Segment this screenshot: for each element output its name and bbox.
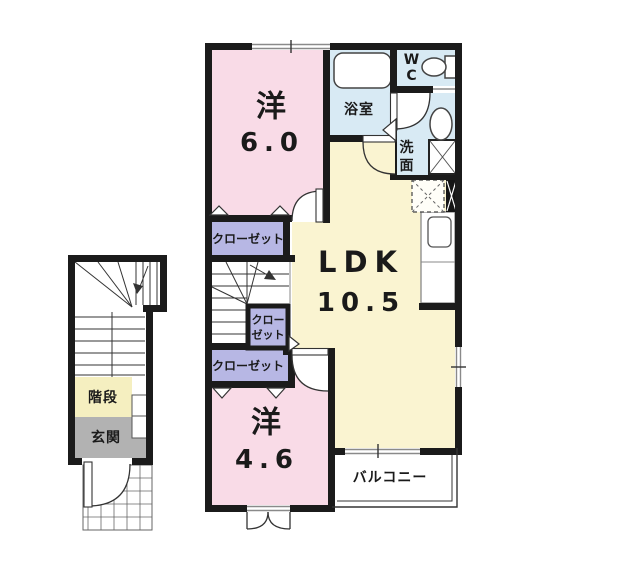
bedroom1-size: 6.0 (240, 128, 304, 158)
floor-plan-svg: 洋 6.0 LDK 10.5 洋 4.6 浴室 W C 洗 面 クローゼット ク… (0, 0, 617, 574)
washbasin (430, 108, 452, 140)
shoe-cabinet-lower (132, 416, 147, 438)
refrigerator-space (412, 180, 444, 212)
ldk-name: LDK (318, 245, 404, 279)
bath-label: 浴室 (344, 101, 374, 118)
wc-label-line2: C (406, 68, 417, 84)
toilet (422, 56, 456, 78)
bedroom1-name: 洋 (256, 90, 286, 125)
bathtub (334, 53, 391, 88)
bedroom2-name: 洋 (251, 406, 281, 441)
closet-lower-label: クローゼット (212, 358, 284, 373)
bedroom2-size: 4.6 (235, 445, 299, 475)
washroom-label-line1: 洗 (400, 139, 415, 156)
entrance-label: 玄関 (91, 429, 121, 446)
balcony-label: バルコニー (353, 470, 428, 486)
staircase-label: 階段 (88, 389, 118, 406)
shoe-cabinet-upper (132, 395, 147, 416)
washing-machine-space (429, 140, 456, 174)
closet-small (248, 306, 288, 348)
closet-upper-label: クローゼット (212, 231, 284, 246)
closet-small-label-line1: クロー (252, 314, 285, 327)
ldk-size: 10.5 (317, 288, 405, 318)
floor-plan: 洋 6.0 LDK 10.5 洋 4.6 浴室 W C 洗 面 クローゼット ク… (0, 0, 617, 574)
kitchen-counter (421, 212, 455, 303)
closet-small-label-line2: ゼット (252, 328, 285, 342)
wc-label-line1: W (404, 52, 420, 68)
washroom-label-line2: 面 (400, 158, 415, 174)
kitchen-sink (428, 217, 451, 247)
